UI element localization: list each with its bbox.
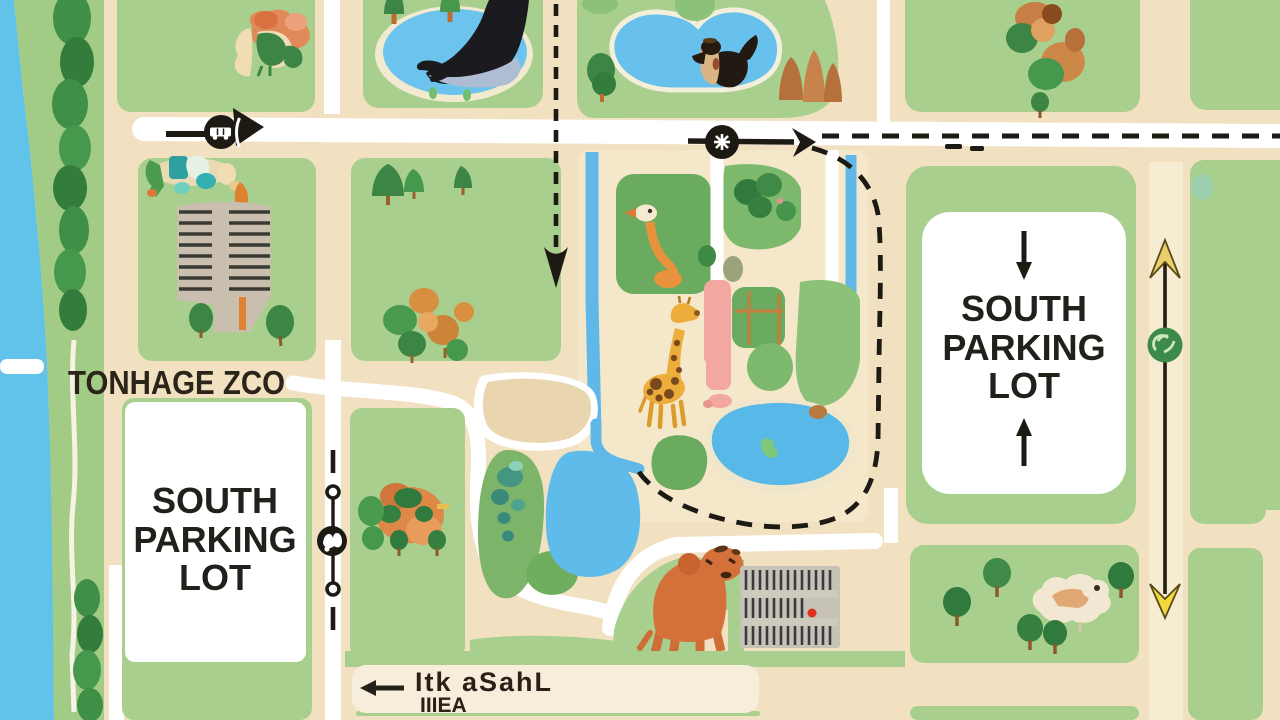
svg-text:PARKING: PARKING xyxy=(942,327,1105,368)
svg-text:LOT: LOT xyxy=(179,557,251,598)
svg-text:SOUTH: SOUTH xyxy=(961,288,1087,329)
svg-text:TONHAGE ZCO: TONHAGE ZCO xyxy=(68,364,285,401)
svg-text:LOT: LOT xyxy=(988,365,1060,406)
svg-text:SOUTH: SOUTH xyxy=(152,480,278,521)
svg-text:IIIEA: IIIEA xyxy=(420,694,467,717)
svg-text:PARKING: PARKING xyxy=(133,519,296,560)
svg-text:Itk aSahL: Itk aSahL xyxy=(415,667,553,697)
